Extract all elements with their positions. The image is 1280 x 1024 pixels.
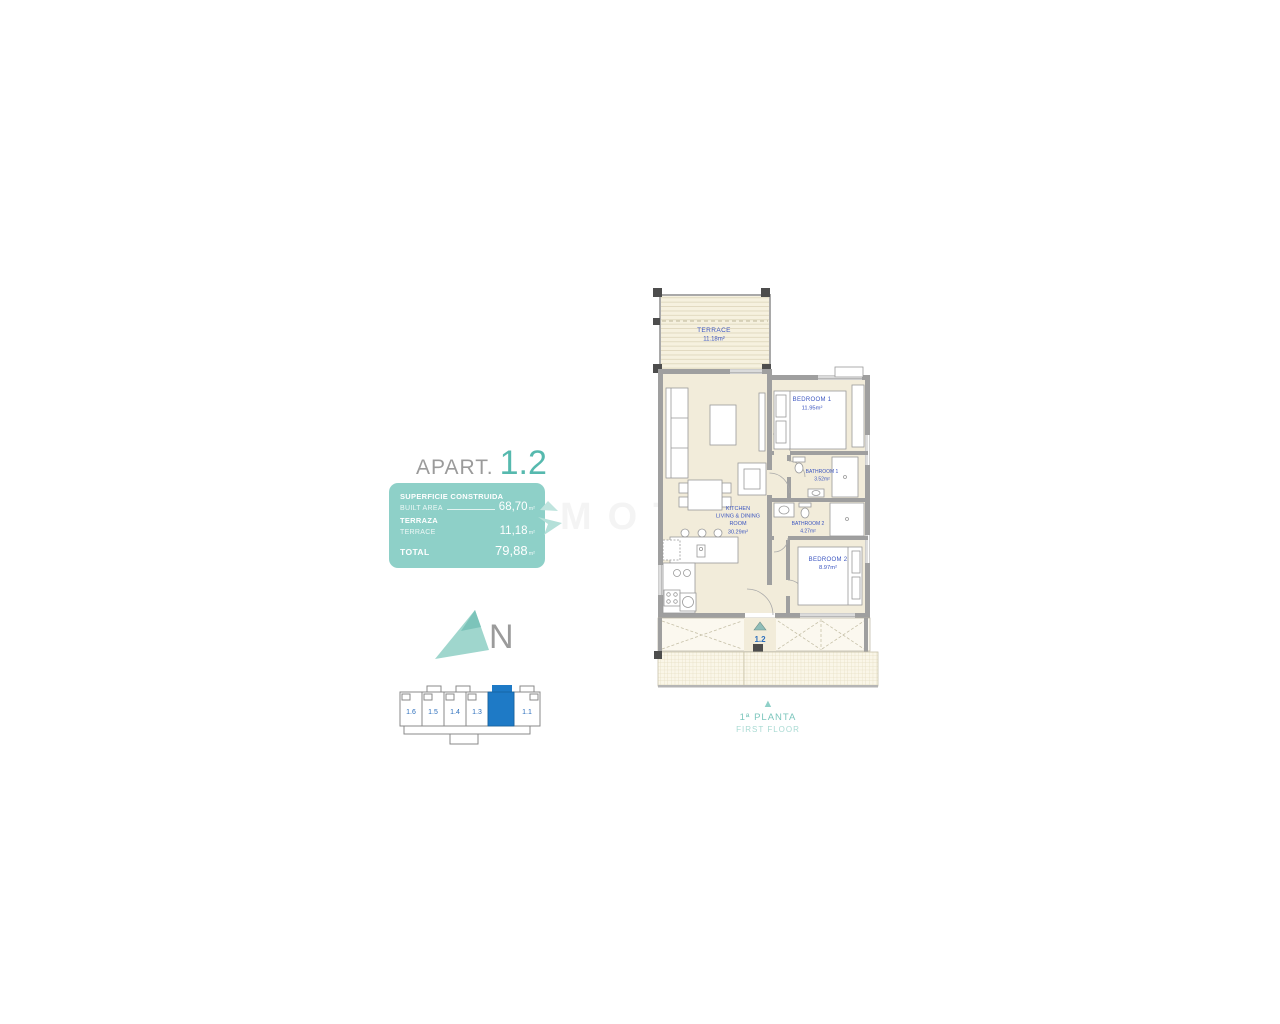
toilet-tank-2: [799, 503, 811, 507]
floorplan-page: MOTION APART.1.2 SUPERFICIE CONSTRUIDA B…: [0, 0, 1280, 1024]
tiled-terrace: [654, 651, 878, 688]
lower-terrace: 1.2: [658, 618, 870, 653]
locator-unit-label: 1.4: [450, 709, 460, 716]
total-unit: m²: [529, 551, 535, 557]
bedroom1-area-value: 11.95m²: [802, 406, 823, 412]
toilet-tank: [793, 457, 805, 462]
terrace-label-en: TERRACE: [400, 529, 436, 536]
leader-line: [447, 509, 495, 510]
pillow: [852, 551, 860, 573]
bedroom2-area-value: 8.97m²: [819, 565, 837, 571]
terrace-area: TERRACE 11.18m²: [653, 288, 771, 373]
locator-walkway: [404, 726, 530, 734]
floor-label-es: 1ª PLANTA: [723, 712, 813, 723]
coffee-table: [710, 405, 736, 445]
bar-stool: [681, 529, 689, 537]
pillow: [852, 577, 860, 599]
bathroom1-label: BATHROOM 1: [806, 469, 839, 475]
terrace-label: TERRACE: [697, 327, 731, 334]
kitchen-sink: [684, 570, 691, 577]
kitchen-label-line1: KITCHEN: [726, 506, 750, 512]
bedroom2-furniture: [798, 547, 862, 605]
building-locator: 1.6 1.5 1.4 1.3 1.1: [394, 682, 544, 750]
locator-unit-label: 1.1: [522, 709, 532, 716]
toilet-2: [801, 508, 809, 518]
terrace-post: [653, 288, 662, 297]
locator-notch: [468, 694, 476, 700]
locator-unit-label: 1.5: [428, 709, 438, 716]
locator-notch: [424, 694, 432, 700]
built-area-label-es: SUPERFICIE CONSTRUIDA: [400, 492, 535, 501]
bathroom1-area-value: 3.52m²: [814, 477, 830, 483]
kitchen-label-line2: LIVING & DINING: [716, 514, 760, 520]
built-area-unit: m²: [529, 506, 535, 512]
floor-triangle-icon: ▲: [723, 699, 813, 709]
locator-unit-1-2-highlight: [488, 692, 514, 726]
kitchen-label-line3: ROOM: [729, 521, 747, 527]
apartment-number: 1.2: [500, 444, 547, 482]
locator-unit-label: 1.6: [406, 709, 416, 716]
terrace-label-es: TERRAZA: [400, 516, 535, 525]
armchair: [738, 463, 766, 495]
built-area-value: 68,70: [499, 501, 528, 513]
apartment-title: APART.1.2: [416, 444, 547, 483]
toilet-1: [795, 463, 803, 473]
terrace-unit: m²: [529, 530, 535, 536]
fridge-space: [663, 540, 680, 560]
total-label: TOTAL: [400, 547, 430, 557]
terrace-area-value: 11.18m²: [703, 337, 725, 343]
terrace-post: [761, 288, 770, 297]
north-compass: N: [433, 608, 528, 666]
pillow: [776, 421, 786, 443]
locator-notch: [446, 694, 454, 700]
locator-unit-label: 1.3: [472, 709, 482, 716]
terrace-post: [653, 318, 660, 325]
logo-glyph: [536, 497, 564, 547]
floor-plan: TERRACE 11.18m²: [650, 285, 885, 695]
north-letter: N: [489, 618, 514, 656]
bedroom1-label: BEDROOM 1: [793, 397, 832, 403]
unit-number-label: 1.2: [754, 635, 766, 644]
terrace-edge: [658, 685, 878, 688]
built-area-label-en: BUILT AREA: [400, 505, 443, 512]
logo-glyph-bottom: [538, 517, 562, 535]
stove: [664, 590, 680, 606]
closet-top: [835, 367, 863, 377]
locator-notch: [530, 694, 538, 700]
tile-post: [654, 651, 662, 659]
apartment-title-prefix: APART.: [416, 456, 494, 479]
tv-unit: [759, 393, 765, 451]
wardrobe-1: [852, 385, 864, 447]
bedroom1-door-gap: [774, 451, 790, 455]
pillow: [776, 395, 786, 417]
bathroom2-area-value: 4.27m²: [800, 529, 816, 535]
surface-summary-box: SUPERFICIE CONSTRUIDA BUILT AREA 68,70 m…: [389, 483, 545, 568]
locator-stair-protrusion: [450, 734, 478, 744]
shower-2: [830, 503, 864, 536]
kitchen-sink: [674, 570, 681, 577]
bedroom2-label: BEDROOM 2: [809, 557, 848, 563]
locator-notch: [402, 694, 410, 700]
bathroom2-label: BATHROOM 2: [792, 521, 825, 527]
kitchen-area-value: 30.29m²: [728, 530, 748, 536]
sofa: [666, 388, 688, 478]
floor-level-label: ▲ 1ª PLANTA FIRST FLOOR: [723, 699, 813, 734]
logo-glyph-top: [540, 501, 558, 511]
terrace-value: 11,18: [500, 525, 528, 537]
floor-label-en: FIRST FLOOR: [723, 725, 813, 734]
entrance-opening: [745, 613, 775, 618]
bar-stool: [714, 529, 722, 537]
bar-stool: [698, 529, 706, 537]
north-arrow-icon: [435, 610, 489, 659]
total-value: 79,88: [495, 543, 528, 558]
bathroom2-door-gap: [774, 536, 788, 540]
sink-2: [774, 503, 794, 517]
shower-1: [832, 457, 858, 497]
